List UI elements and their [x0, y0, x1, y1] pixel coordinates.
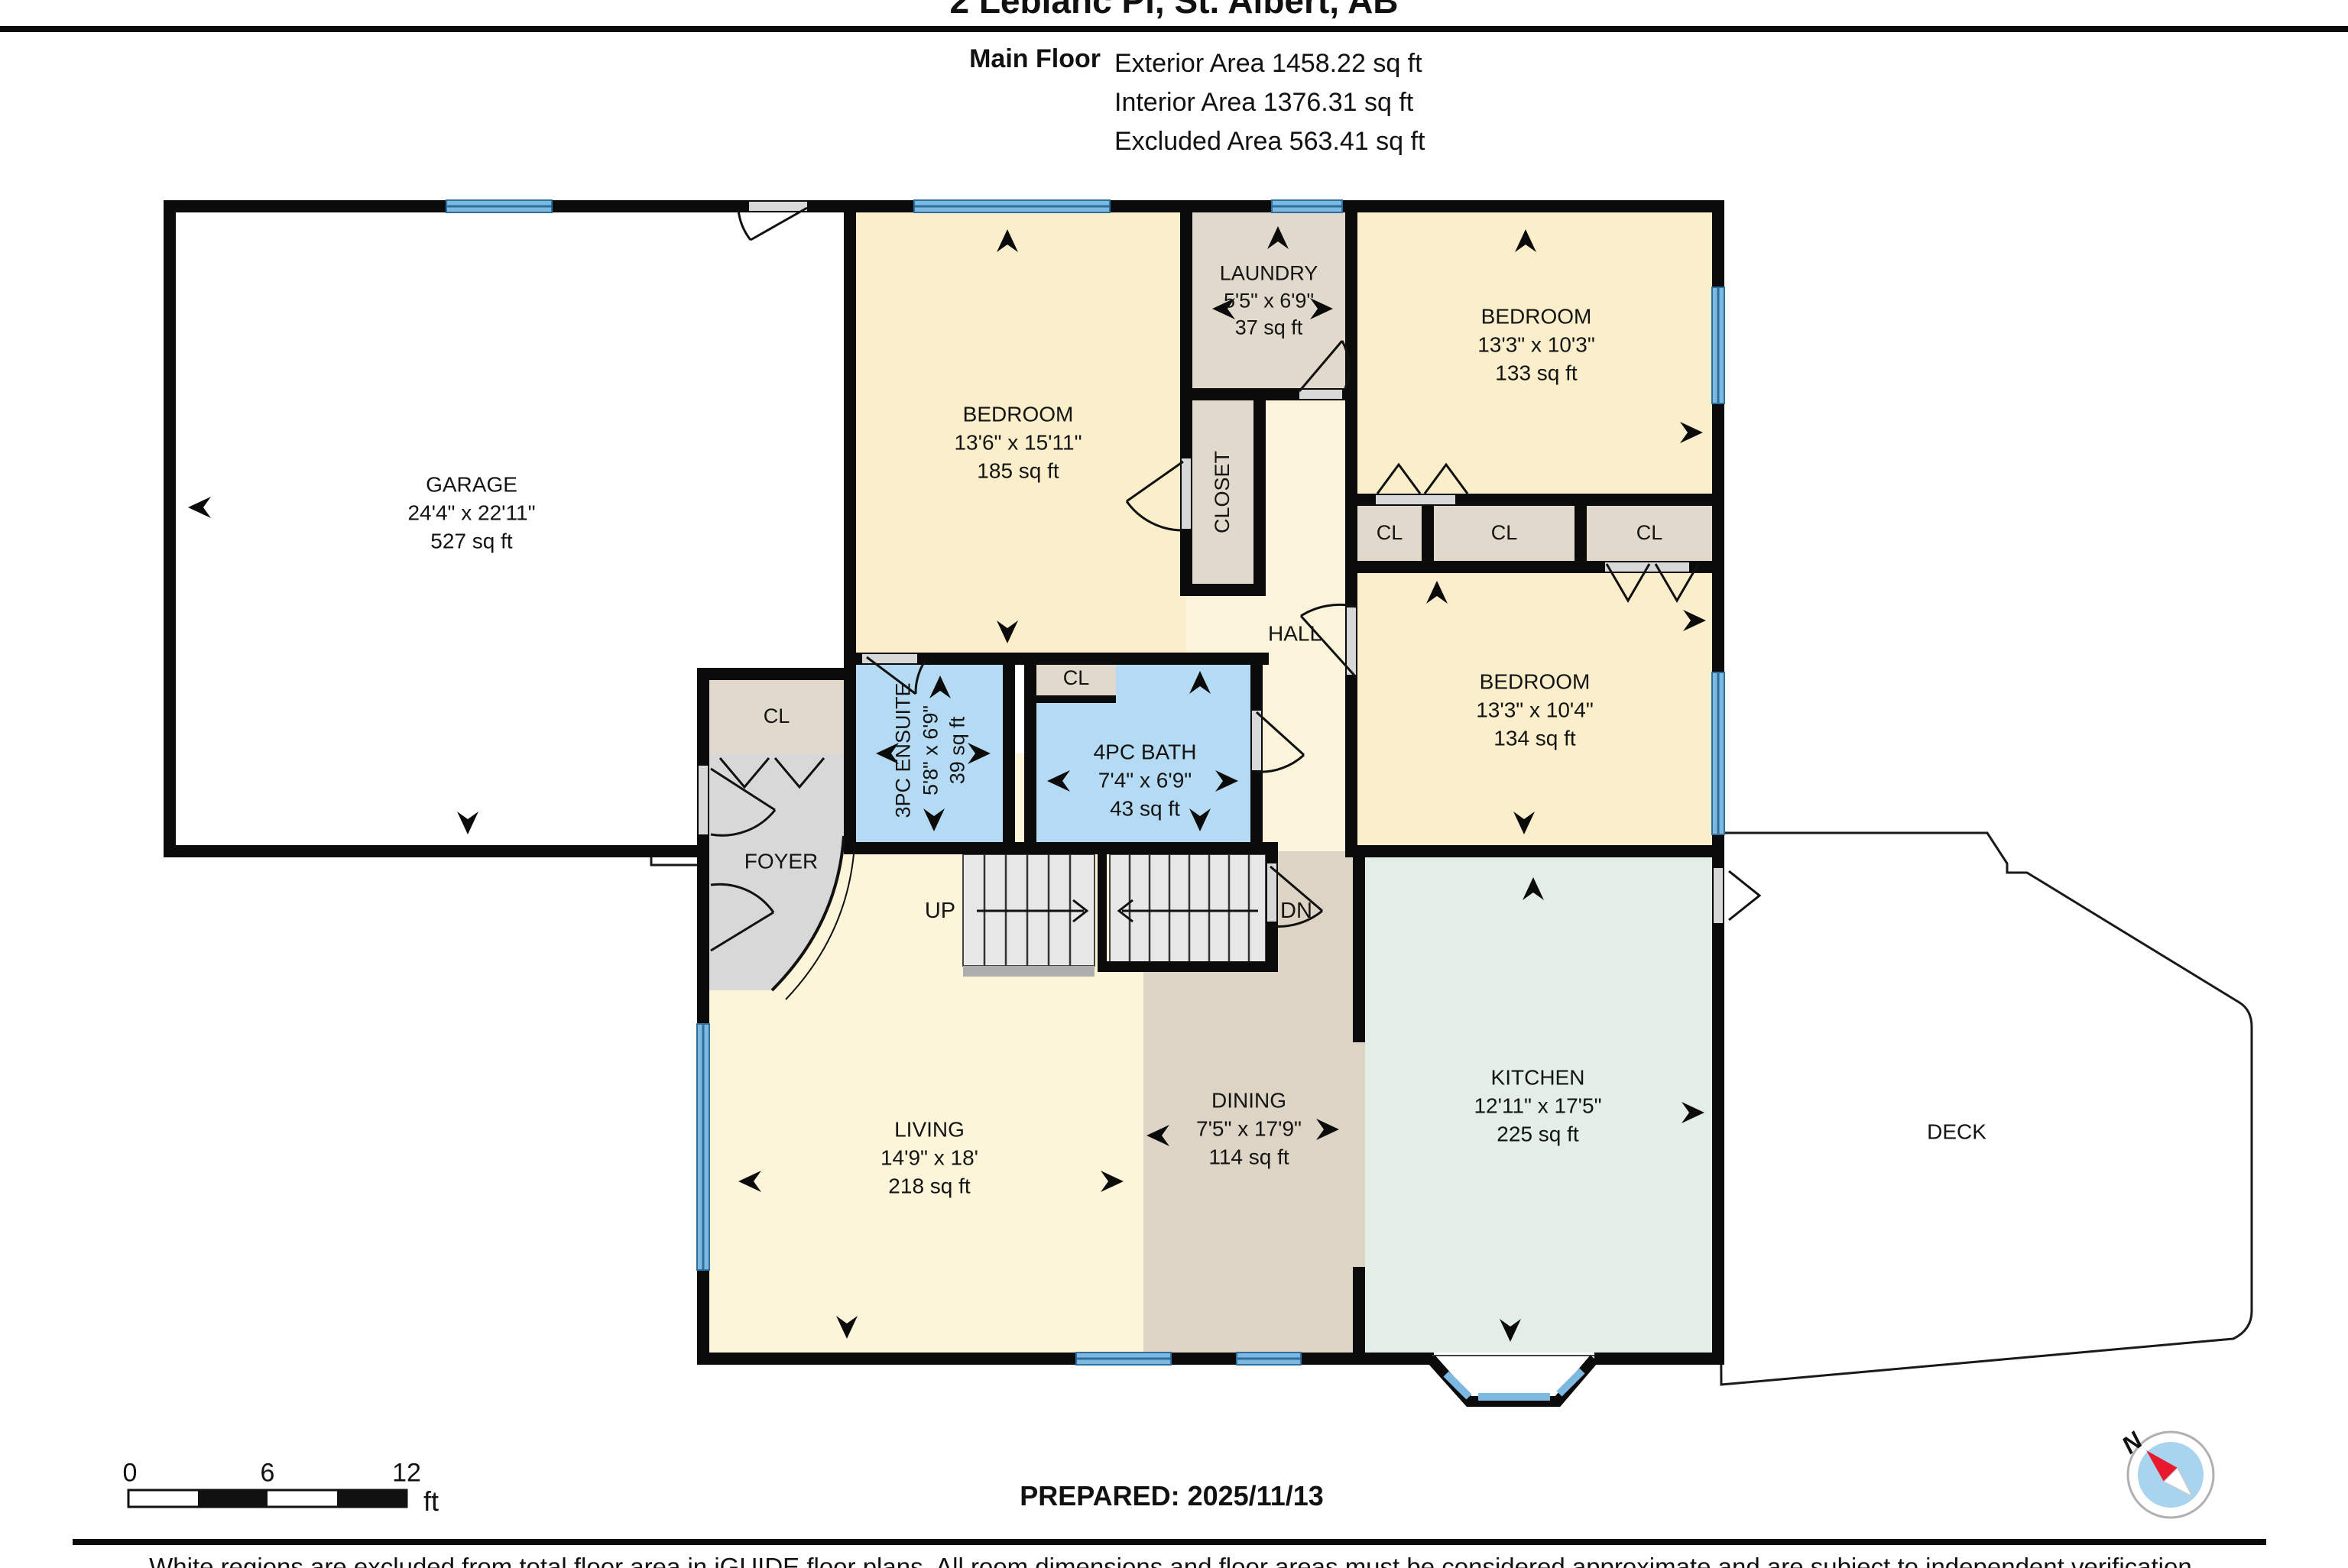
staircase	[963, 854, 1266, 977]
closet-label: CLOSET	[1209, 451, 1237, 533]
foyer-closet-label: CL	[764, 703, 790, 731]
garage-label: GARAGE24'4" x 22'11"527 sq ft	[407, 471, 535, 556]
closet-b-label: CL	[1491, 520, 1518, 547]
scale-tick-12: 12	[392, 1459, 421, 1489]
bedroom3-label: BEDROOM13'3" x 10'4"134 sq ft	[1476, 669, 1594, 753]
kitchen-label: KITCHEN12'11" x 17'5"225 sq ft	[1474, 1064, 1601, 1149]
bay-window	[1431, 1353, 1594, 1401]
stairs-up-label: UP	[925, 896, 955, 925]
stair-landing	[963, 966, 1095, 977]
bedroom2-label: BEDROOM13'3" x 10'3"133 sq ft	[1477, 303, 1595, 388]
stairs-down-label: DN	[1280, 896, 1312, 925]
scale-tick-0: 0	[123, 1459, 138, 1489]
hall-nook-floor	[1186, 590, 1260, 653]
deck-label: DECK	[1927, 1119, 1986, 1147]
hall-label: HALL	[1268, 620, 1322, 649]
closet-a-label: CL	[1377, 520, 1403, 547]
foyer-label: FOYER	[744, 848, 818, 876]
scale-tick-6: 6	[261, 1459, 275, 1489]
scale-unit: ft	[423, 1485, 439, 1518]
bath-closet-label: CL	[1063, 665, 1090, 692]
prepared-date: PREPARED: 2025/11/13	[1020, 1480, 1324, 1512]
floor-plan-page: 2 Leblanc Pl, St. Albert, AB Main Floor …	[0, 0, 2348, 1568]
bedroom1-label: BEDROOM13'6" x 15'11"185 sq ft	[954, 401, 1082, 486]
bath-label: 4PC BATH7'4" x 6'9"43 sq ft	[1094, 739, 1197, 824]
disclaimer-text: White regions are excluded from total fl…	[0, 1553, 2348, 1568]
dining-label: DINING7'5" x 17'9"114 sq ft	[1196, 1087, 1302, 1172]
ensuite-label: 3PC ENSUITE5'8" x 6'9"39 sq ft	[890, 682, 972, 818]
living-label: LIVING14'9" x 18'218 sq ft	[880, 1116, 978, 1201]
scale-bar	[128, 1490, 407, 1507]
closet-c-label: CL	[1636, 520, 1663, 547]
laundry-label: LAUNDRY5'5" x 6'9"37 sq ft	[1220, 261, 1318, 342]
footer-rule	[73, 1539, 2266, 1545]
